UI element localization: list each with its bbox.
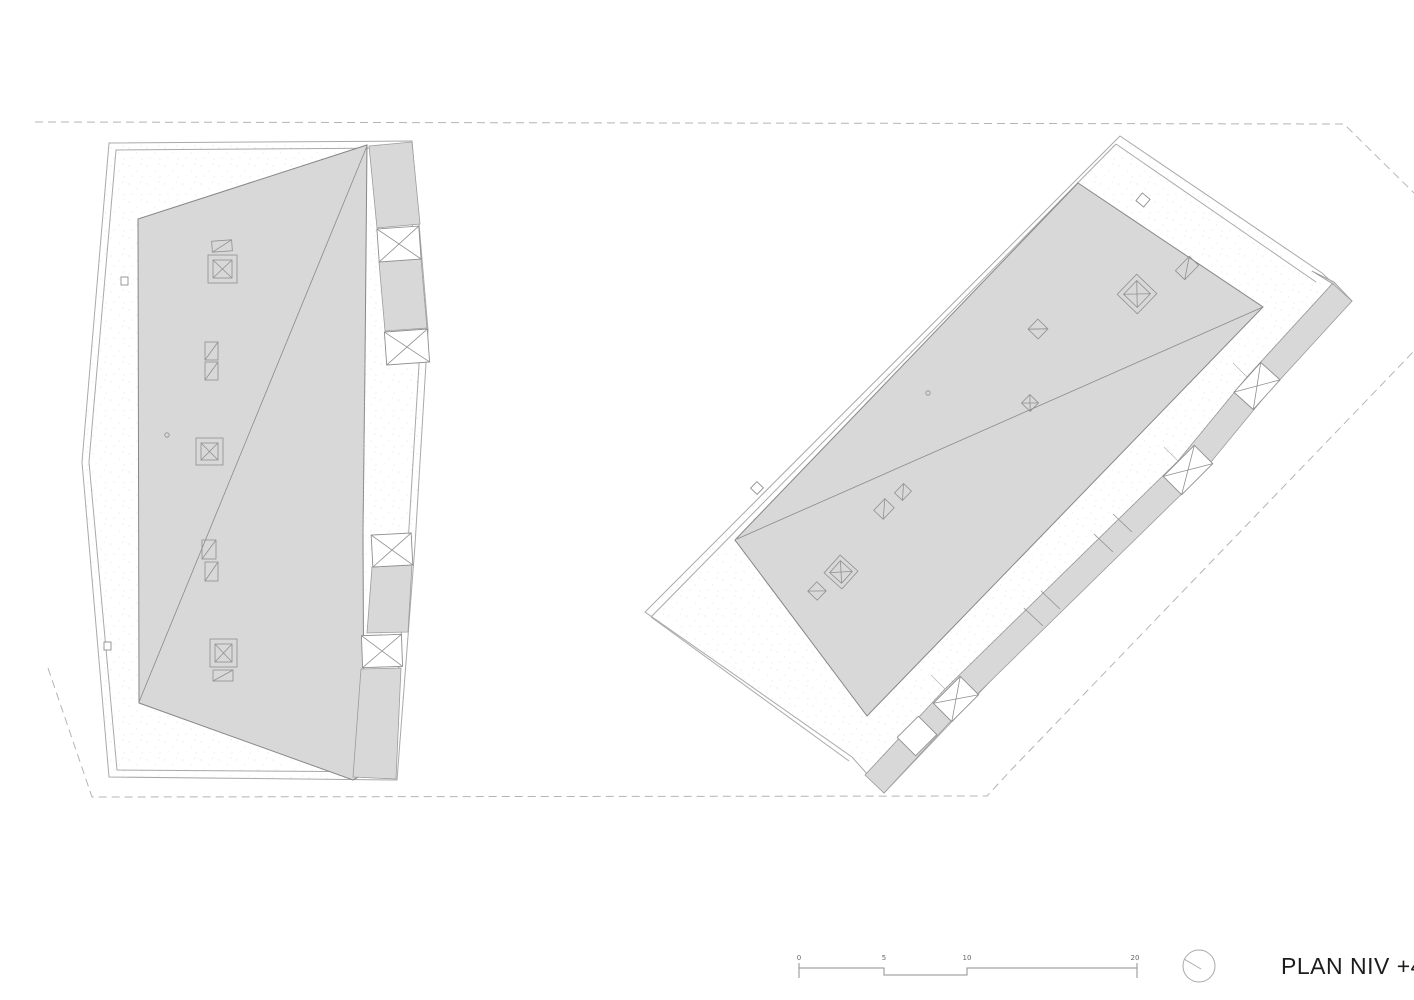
scale-tick-label: 10	[963, 954, 972, 962]
building-right	[645, 136, 1352, 793]
building-left	[82, 141, 430, 780]
facade-opening-icon	[104, 642, 111, 650]
floor-plan-svg: 0 5 10 20 PLAN NIV +4	[0, 0, 1414, 1000]
scale-tick-label: 20	[1131, 954, 1140, 962]
crossed-shaft-icon	[371, 533, 413, 567]
drawing-sheet: 0 5 10 20 PLAN NIV +4	[0, 0, 1414, 1000]
facade-opening-icon	[121, 277, 128, 285]
scale-bar: 0 5 10 20	[797, 954, 1140, 978]
plan-title: PLAN NIV +4	[1281, 953, 1414, 979]
scale-tick-label: 5	[882, 954, 886, 962]
crossed-shaft-icon	[384, 329, 429, 365]
crossed-shaft-icon	[361, 634, 402, 667]
scale-bar-line	[799, 963, 1137, 978]
north-circle-icon	[1183, 950, 1215, 982]
scale-tick-label: 0	[797, 954, 801, 962]
crossed-shaft-icon	[377, 226, 421, 262]
facade-opening-icon	[751, 482, 764, 495]
left-roof-surface	[138, 145, 367, 780]
